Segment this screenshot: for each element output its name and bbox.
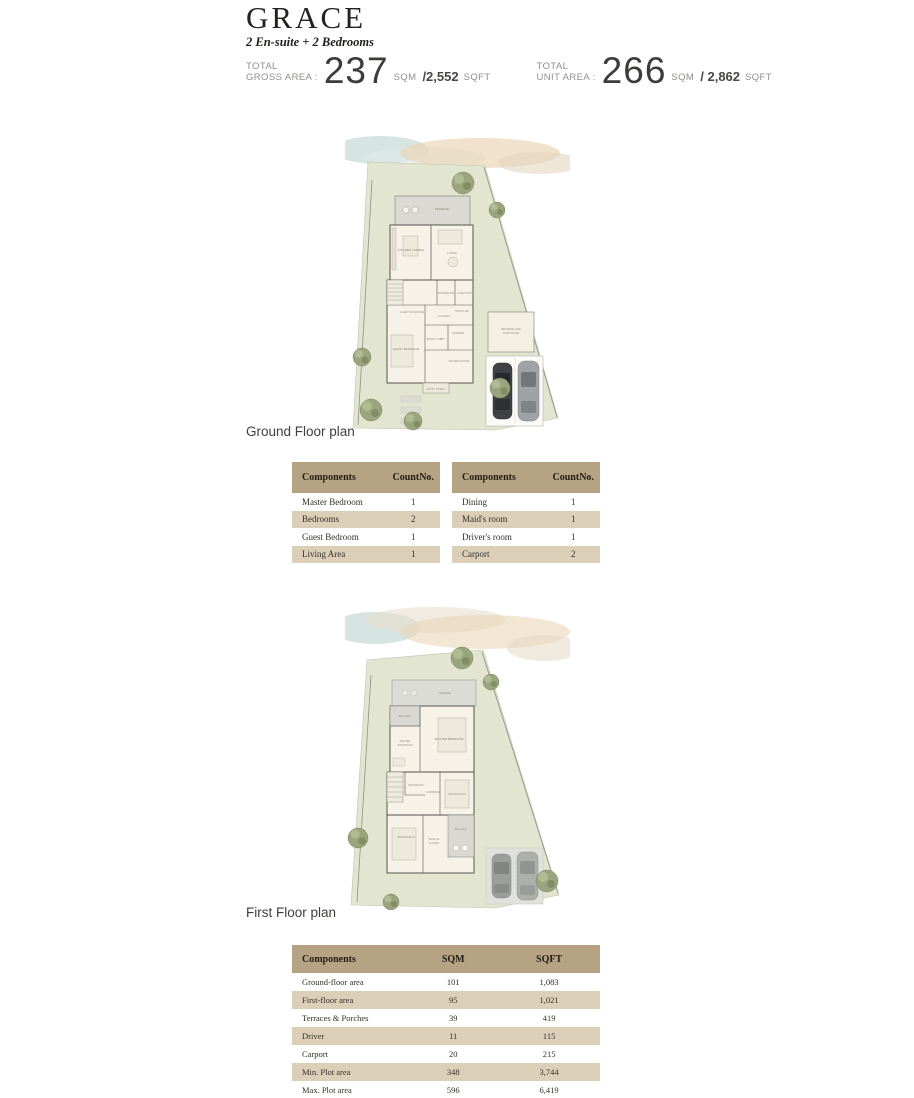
maid-room-label: MAID'S RM bbox=[455, 309, 468, 313]
first-floor-plan-drawing: TERRACE BALCONY MASTER BATHROOM MASTER B… bbox=[345, 590, 570, 910]
count-column-header: CountNo. bbox=[546, 462, 600, 493]
unit-area-stat: TOTAL UNIT AREA : 266 SQM / 2,862 SQFT bbox=[537, 56, 772, 86]
page-title: GRACE bbox=[246, 0, 366, 36]
components-column-header: Components bbox=[292, 945, 408, 973]
living-label: LIVING bbox=[447, 251, 458, 255]
table-row: Master Bedroom1 bbox=[292, 493, 440, 511]
components-column-header: Components bbox=[452, 462, 546, 493]
table-row: Driver's room1 bbox=[452, 528, 600, 546]
tree-icon bbox=[483, 674, 499, 690]
terrace-label: TERRACE bbox=[435, 207, 449, 211]
pump-room-label-2: PUMP ROOM bbox=[503, 331, 519, 335]
sqm-column-header: SQM bbox=[408, 945, 498, 973]
tree-icon bbox=[353, 348, 371, 366]
sqm-unit-label: SQM bbox=[394, 72, 417, 83]
terrace-roof: TERRACE bbox=[392, 680, 476, 706]
car-grey-icon bbox=[517, 852, 538, 900]
planter-icon bbox=[403, 207, 409, 213]
table-header-row: Components SQM SQFT bbox=[292, 945, 600, 973]
table-row: Guest Bedroom1 bbox=[292, 528, 440, 546]
driver-room-label: DRIVER'S ROOM bbox=[449, 359, 470, 363]
planter-icon bbox=[411, 690, 417, 696]
bedroom-03-label: BEDROOM 03 bbox=[397, 835, 415, 839]
house-upper-block: KITCHEN / DINING LIVING bbox=[390, 225, 473, 280]
guest-bath-label: GUEST BATH bbox=[457, 291, 473, 295]
guest-bedroom-label: GUEST BEDROOM bbox=[393, 347, 420, 351]
tree-icon bbox=[536, 870, 558, 892]
corridor-label: CORRIDOR bbox=[426, 790, 440, 794]
ground-floor-caption: Ground Floor plan bbox=[246, 424, 355, 439]
tree-icon bbox=[360, 399, 382, 421]
sofa bbox=[438, 230, 462, 244]
carport-below bbox=[486, 848, 543, 904]
shower-label: SHOWER bbox=[452, 331, 464, 335]
count-column-header: CountNo. bbox=[386, 462, 440, 493]
gross-area-sqm-value: 237 bbox=[324, 56, 389, 86]
page-subtitle: 2 En-suite + 2 Bedrooms bbox=[246, 35, 374, 50]
tree-icon bbox=[383, 894, 399, 910]
bedroom-02-label: BEDROOM 02 bbox=[448, 792, 466, 796]
master-bathroom-label-2: BATHROOM bbox=[398, 743, 413, 747]
ground-floor-plan-drawing: TERRACE KITCHEN / DINING LIVING bbox=[345, 120, 570, 432]
gross-area-sqft-value: /2,552 bbox=[422, 69, 458, 84]
entry-lobby-label: ENTRY LOBBY bbox=[427, 337, 445, 341]
kitchen-label: KITCHEN / DINING bbox=[398, 248, 425, 252]
balcony-label: BALCONY bbox=[399, 714, 412, 718]
laundry-label: LAUNDRY bbox=[438, 314, 451, 318]
table-header-row: Components CountNo. bbox=[292, 462, 440, 493]
master-bathroom-label: MASTER bbox=[400, 739, 411, 743]
bathroom-label: BATHROOM bbox=[409, 783, 424, 787]
tree-icon bbox=[451, 647, 473, 669]
areas-table: Components SQM SQFT Ground-floor area101… bbox=[292, 945, 600, 1098]
tree-icon bbox=[489, 202, 505, 218]
unit-area-sqft-value: / 2,862 bbox=[700, 69, 740, 84]
sqft-unit-label: SQFT bbox=[745, 72, 772, 83]
kitchen-counter bbox=[392, 228, 396, 270]
terrace: TERRACE bbox=[395, 196, 470, 225]
house-middle-block: BATHROOM CORRIDOR BEDROOM 02 bbox=[387, 772, 474, 815]
balcony bbox=[448, 815, 474, 857]
table-row: Carport2 bbox=[452, 546, 600, 564]
terrace-label: TERRACE bbox=[439, 691, 452, 695]
master-bed bbox=[438, 718, 466, 752]
bath-fixture bbox=[393, 758, 405, 766]
table-row: Maid's room1 bbox=[452, 511, 600, 529]
sqft-column-header: SQFT bbox=[498, 945, 600, 973]
pump-room: METERING AND PUMP ROOM bbox=[488, 312, 534, 352]
table-row: Carport20215 bbox=[292, 1045, 600, 1063]
house-upper-block: BALCONY MASTER BATHROOM MASTER BEDROOM bbox=[390, 706, 474, 772]
area-stats: TOTAL GROSS AREA : 237 SQM /2,552 SQFT T… bbox=[246, 56, 772, 86]
car-grey-icon bbox=[518, 361, 539, 421]
bed bbox=[392, 828, 416, 860]
gross-area-label: TOTAL GROSS AREA : bbox=[246, 61, 318, 86]
tree-icon bbox=[348, 828, 368, 848]
planter-icon bbox=[453, 845, 459, 851]
pump-room-label: METERING AND bbox=[501, 327, 521, 331]
table-row: Bedrooms2 bbox=[292, 511, 440, 529]
dining-table bbox=[403, 236, 418, 256]
house-lower-block: BEDROOM 03 WALK-IN CLOSET BALCONY bbox=[387, 815, 474, 873]
components-table-right: Components CountNo. Dining1 Maid's room1… bbox=[452, 462, 600, 563]
components-table-left: Components CountNo. Master Bedroom1 Bedr… bbox=[292, 462, 440, 563]
table-row: Ground-floor area1011,083 bbox=[292, 973, 600, 991]
guest-bed bbox=[391, 335, 413, 367]
first-floor-caption: First Floor plan bbox=[246, 905, 336, 920]
walk-in-closet-label-2: CLOSET bbox=[429, 841, 440, 845]
table-row: Max. Plot area5966,419 bbox=[292, 1081, 600, 1098]
sqm-unit-label: SQM bbox=[671, 72, 694, 83]
sqft-unit-label: SQFT bbox=[464, 72, 491, 83]
planter-icon bbox=[402, 690, 408, 696]
table-row: Min. Plot area3483,744 bbox=[292, 1063, 600, 1081]
tree-icon bbox=[404, 412, 422, 430]
table-row: Terraces & Porches39419 bbox=[292, 1009, 600, 1027]
table-header-row: Components CountNo. bbox=[452, 462, 600, 493]
master-bedroom-label: MASTER BEDROOM bbox=[435, 737, 464, 741]
powder-room-label: POWDER RM bbox=[438, 291, 454, 295]
entry-porch-label: ENTRY PORCH bbox=[427, 387, 446, 391]
planter-icon bbox=[412, 207, 418, 213]
unit-area-sqm-value: 266 bbox=[602, 56, 667, 86]
table-row: Living Area1 bbox=[292, 546, 440, 564]
balcony-label: BALCONY bbox=[455, 827, 468, 831]
walk-in-closet-label: WALK-IN bbox=[429, 837, 440, 841]
table-row: First-floor area951,021 bbox=[292, 991, 600, 1009]
components-column-header: Components bbox=[292, 462, 386, 493]
tree-icon bbox=[452, 172, 474, 194]
car-grey-icon bbox=[492, 854, 511, 898]
table-row: Driver11115 bbox=[292, 1027, 600, 1045]
planter-icon bbox=[462, 845, 468, 851]
guest-bathroom-label: GUEST BATHROOM bbox=[400, 310, 424, 314]
staircase bbox=[387, 772, 403, 802]
coffee-table bbox=[448, 257, 458, 267]
table-row: Dining1 bbox=[452, 493, 600, 511]
unit-area-label: TOTAL UNIT AREA : bbox=[537, 61, 596, 86]
tree-icon bbox=[490, 378, 510, 398]
page: GRACE 2 En-suite + 2 Bedrooms TOTAL GROS… bbox=[0, 0, 914, 1098]
staircase bbox=[387, 280, 403, 305]
gross-area-stat: TOTAL GROSS AREA : 237 SQM /2,552 SQFT bbox=[246, 56, 491, 86]
house-lower-block: POWDER RM GUEST BATH GUEST BATHROOM LAUN… bbox=[387, 280, 473, 383]
